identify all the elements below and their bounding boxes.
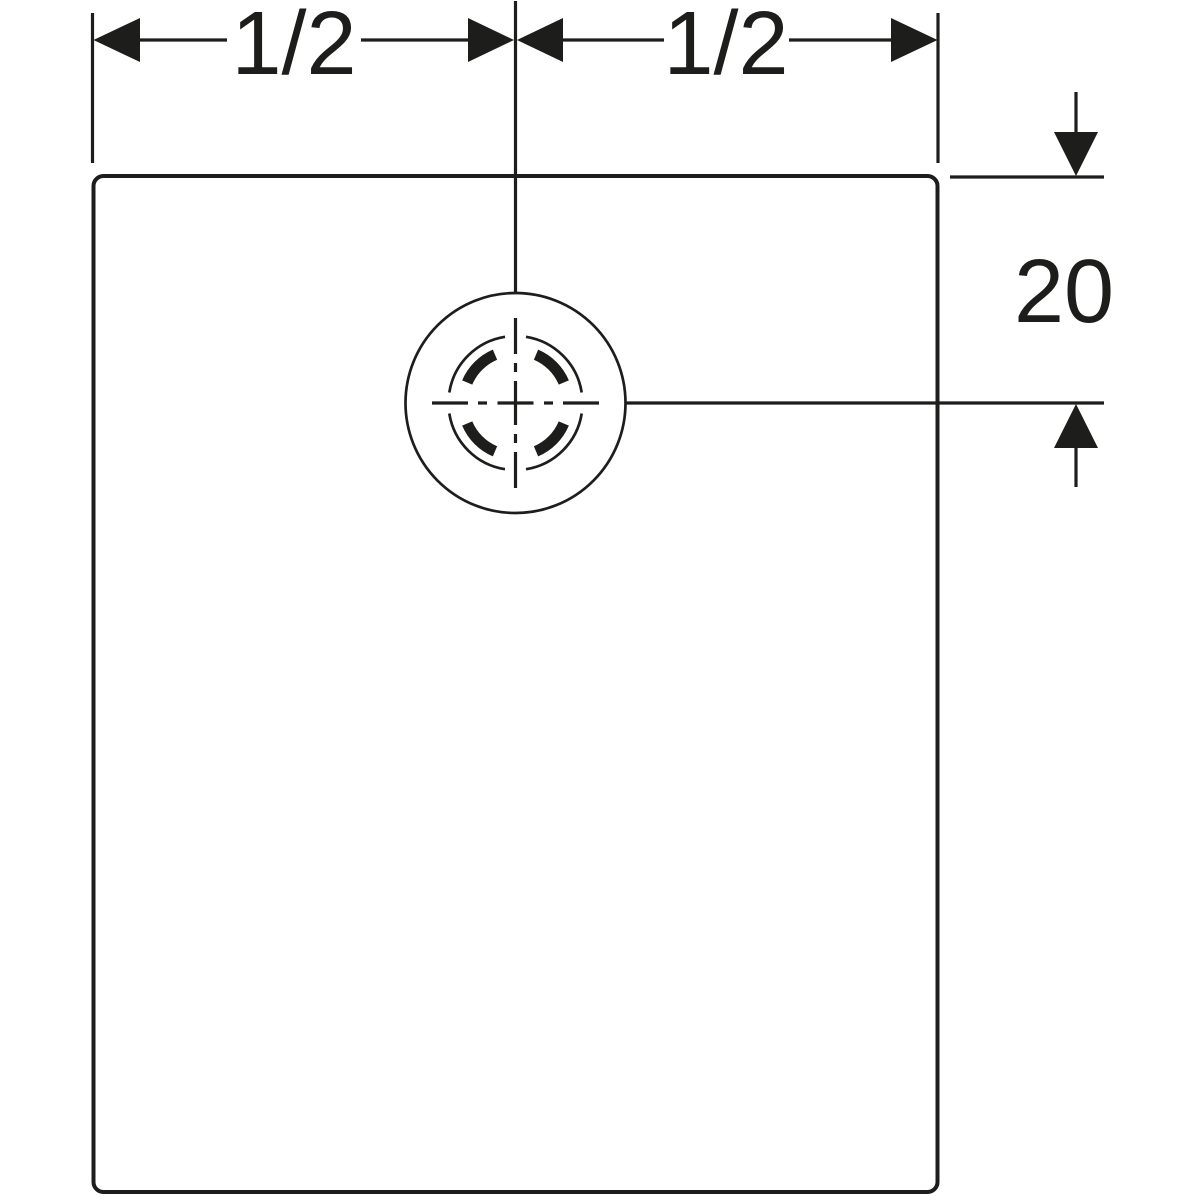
drain-ring-arc-bl bbox=[467, 424, 495, 452]
drain-crosshair bbox=[432, 318, 599, 488]
drain-ring-arc-br bbox=[536, 424, 564, 452]
drain-ring-arc-tl bbox=[467, 355, 495, 383]
technical-drawing-canvas: 1/2 1/2 20 bbox=[0, 0, 1200, 1200]
shower-tray-dimension-drawing: 1/2 1/2 20 bbox=[0, 0, 1200, 1200]
arrowhead-right-outward-icon bbox=[891, 18, 938, 62]
dimension-label-left-half: 1/2 bbox=[231, 0, 356, 94]
arrowhead-up-icon bbox=[1054, 404, 1098, 448]
arrowhead-left-outward-icon bbox=[94, 18, 141, 62]
dimension-label-right-half: 1/2 bbox=[663, 0, 788, 94]
arrowhead-left-toward-center-icon bbox=[468, 18, 514, 62]
dimension-label-drain-offset: 20 bbox=[1014, 242, 1114, 342]
arrowhead-right-toward-center-icon bbox=[517, 18, 563, 62]
drain-ring-arc-tr bbox=[536, 355, 564, 383]
arrowhead-down-icon bbox=[1054, 132, 1098, 176]
